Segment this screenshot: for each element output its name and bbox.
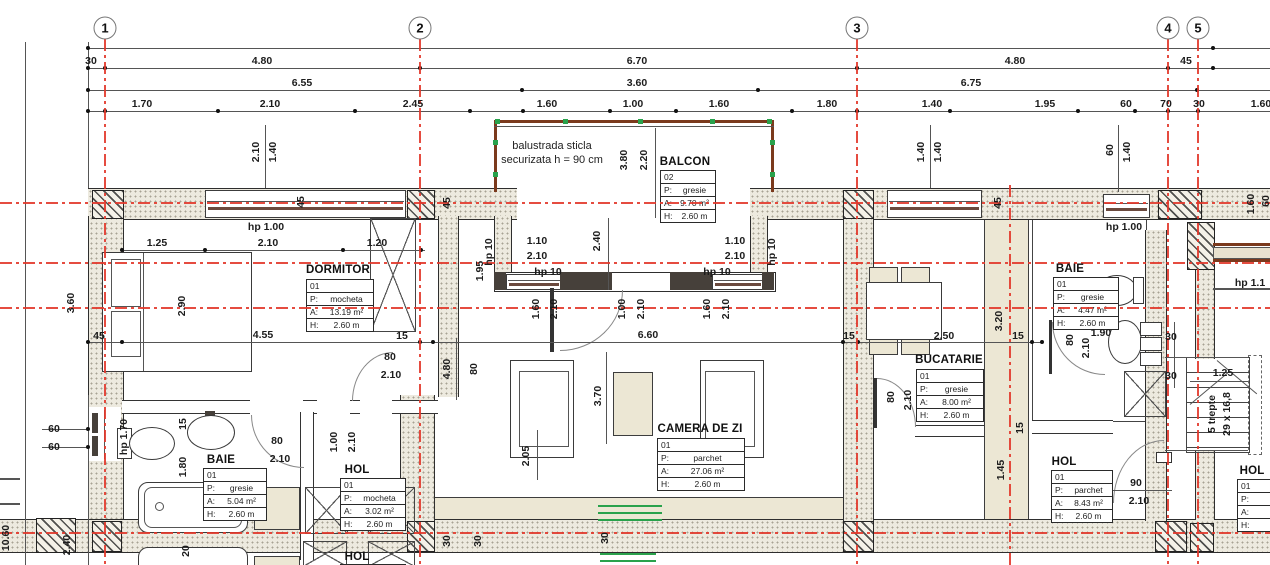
- room-table-row: A:8.43 m²: [1052, 496, 1112, 509]
- room-table-value: [674, 439, 741, 451]
- dim-label: 1.60: [537, 98, 557, 110]
- dim-label: 15: [1014, 422, 1026, 434]
- dim-label: 2.40: [591, 231, 603, 251]
- sink: [187, 415, 235, 450]
- terrace-railing-top: [1213, 243, 1270, 246]
- room-table-value: 2.60 m: [357, 518, 402, 530]
- dim-label: 1.00: [623, 98, 643, 110]
- room-table-value: 2.60 m: [674, 478, 741, 490]
- room-table-key: A:: [207, 495, 220, 507]
- dim-label: 2.50: [934, 330, 954, 342]
- room-table-key: H:: [207, 508, 220, 520]
- dim-label: 30: [441, 535, 453, 547]
- dim-label: 60: [1120, 98, 1132, 110]
- column-axis1-bottom: [92, 521, 122, 552]
- room-name: BAIE: [207, 454, 235, 466]
- room-table-row: P:gresie: [917, 382, 983, 395]
- room-table-value: gresie: [677, 184, 712, 196]
- dim-label: 6.55: [292, 77, 312, 89]
- dim-label: 30: [599, 532, 611, 544]
- dim-label: 80: [384, 351, 396, 363]
- room-name: HOL: [345, 464, 370, 476]
- dim-label: 15: [843, 330, 855, 342]
- dim-label: hp 1.1: [1235, 277, 1265, 289]
- stairs-bottom-line: [1165, 450, 1248, 451]
- room-table-value: [1254, 480, 1270, 492]
- room-table-value: [1068, 471, 1109, 483]
- dim-line: [1118, 125, 1119, 192]
- room-table-row: A:27.06 m²: [658, 464, 744, 477]
- balcony-wall-pier: [494, 272, 506, 290]
- dim-label: 60: [1104, 144, 1116, 156]
- room-table-row: H:2.60 m: [204, 507, 266, 520]
- room-table-row: H:2.60 m: [1052, 509, 1112, 522]
- dim-label: 1.10: [725, 235, 745, 247]
- room-table-value: [1254, 493, 1270, 505]
- dim-label: 3.70: [592, 386, 604, 406]
- door-leaf-kitchen: [874, 378, 877, 428]
- dim-row-line: [88, 68, 1270, 69]
- room-table-value: 2.60 m: [1068, 510, 1109, 522]
- room-table-value: [1070, 278, 1115, 290]
- dim-label: 1.70: [132, 98, 152, 110]
- room-info-table: 01P:gresieA:4.47 m²H:2.60 m: [1053, 277, 1119, 330]
- dim-label: 2.10: [1080, 338, 1092, 358]
- room-table-value: gresie: [933, 383, 980, 395]
- dim-label: 3.60: [65, 293, 77, 313]
- room-table-row: P:parchet: [1052, 483, 1112, 496]
- dim-label: 80: [271, 435, 283, 447]
- dim-tick: [353, 109, 357, 113]
- partition-dormitor-south-d: [392, 400, 438, 414]
- dim-tick: [790, 109, 794, 113]
- dim-label: 30: [472, 535, 484, 547]
- dim-tick: [1030, 340, 1034, 344]
- room-table-row: 01: [1052, 471, 1112, 483]
- room-name: BAIE: [1056, 263, 1084, 275]
- window-kitchen: [887, 190, 982, 218]
- window-left-wall-sash-icon: [92, 413, 98, 433]
- annotation-note: balustrada sticla: [512, 140, 592, 152]
- dim-line: [606, 352, 607, 444]
- dim-label: 45: [295, 196, 307, 208]
- dim-line: [265, 125, 266, 188]
- radiator-icon: [598, 505, 662, 521]
- room-table-value: 2.: [1254, 519, 1270, 531]
- annotation-note: securizata h = 90 cm: [501, 154, 603, 166]
- balustrade-left: [494, 120, 497, 192]
- room-table-key: A:: [1055, 497, 1068, 509]
- room-info-table: 01P:gresieA:5.04 m²H:2.60 m: [203, 468, 267, 521]
- balustrade-fixing-icon: [770, 172, 775, 177]
- dim-tick: [203, 248, 207, 252]
- dim-label: 2.10: [902, 390, 914, 410]
- room-table-value: parchet: [1068, 484, 1109, 496]
- room-table-row: H:2.60 m: [307, 318, 373, 331]
- stairs-side-wall: [1248, 355, 1262, 455]
- balustrade-fixing-icon: [770, 140, 775, 145]
- armchair-left: [510, 360, 574, 458]
- dim-label: 45: [992, 197, 1004, 209]
- room-table-key: P:: [920, 383, 933, 395]
- dim-label: 45: [1180, 55, 1192, 67]
- pillow: [111, 311, 141, 357]
- dim-label: 15: [1012, 330, 1024, 342]
- room-info-table: 01P:mochetaA:3.02 m²H:2.60 m: [340, 478, 406, 531]
- dim-label: 90: [1130, 477, 1142, 489]
- dim-line: [930, 125, 931, 188]
- partition-kitchen-south: [915, 425, 984, 437]
- dim-label: 80: [885, 391, 897, 403]
- dining-table: [866, 282, 942, 340]
- dim-label: 2.10: [725, 250, 745, 262]
- dim-label: 1.60: [709, 98, 729, 110]
- balustrade-fixing-icon: [495, 119, 500, 124]
- dim-tick: [120, 248, 124, 252]
- dim-label: hp 1.00: [248, 221, 284, 233]
- room-table-key: 01: [1057, 278, 1070, 290]
- dim-tick: [608, 109, 612, 113]
- room-table-row: A:3.02 m²: [341, 504, 405, 517]
- balustrade-top: [494, 120, 774, 123]
- room-table-key: H:: [344, 518, 357, 530]
- column-axis3-bottom: [843, 521, 874, 552]
- dim-label: 30: [1165, 370, 1177, 382]
- room-table-value: parchet: [674, 452, 741, 464]
- room-table-key: A:: [1057, 304, 1070, 316]
- room-table-value: [933, 370, 980, 382]
- room-table-row: H:2.60 m: [661, 209, 715, 222]
- dim-label: 2.10: [260, 98, 280, 110]
- balustrade-fixing-icon: [767, 119, 772, 124]
- room-table-value: 8.00 m²: [933, 396, 980, 408]
- dim-label: hp 1.70: [118, 419, 130, 455]
- room-table-key: 01: [1055, 471, 1068, 483]
- grid-bubble: 2: [409, 17, 432, 40]
- balustrade-inner-line: [494, 126, 774, 127]
- room-table-key: 01: [1241, 480, 1254, 492]
- dim-line: [1190, 381, 1248, 382]
- room-table-value: [220, 469, 263, 481]
- room-table-row: A:8.00 m²: [917, 395, 983, 408]
- room-table-key: H:: [1055, 510, 1068, 522]
- room-table-row: 01: [204, 469, 266, 481]
- room-table-key: H:: [664, 210, 677, 222]
- axis-line-vertical: [419, 39, 421, 565]
- column-axis45-top: [1158, 190, 1202, 219]
- dim-label: 1.40: [1121, 142, 1133, 162]
- dim-label: 2.10: [270, 453, 290, 465]
- shelf: [1140, 352, 1162, 366]
- dim-tick: [86, 427, 90, 431]
- room-table-value: 4.47 m²: [1070, 304, 1115, 316]
- room-info-table: 02P:gresieA:9.70 m²H:2.60 m: [660, 170, 716, 223]
- dim-label: 1.10: [527, 235, 547, 247]
- room-table-row: P:: [1238, 492, 1270, 505]
- room-table-row: A:4.47 m²: [1054, 303, 1118, 316]
- terrace-railing-band: [1213, 247, 1270, 259]
- room-table-row: 01: [1054, 278, 1118, 290]
- room-name: BUCATARIE: [915, 354, 983, 366]
- dim-label: 1.90: [1091, 327, 1111, 339]
- stairs-top-line: [1165, 357, 1248, 358]
- room-table-row: A:5.04 m²: [204, 494, 266, 507]
- room-table-value: gresie: [1070, 291, 1115, 303]
- room-table-value: 8.43 m²: [1068, 497, 1109, 509]
- room-table-row: 01: [307, 280, 373, 292]
- grid-bubble: 1: [94, 17, 117, 40]
- room-table-key: 01: [207, 469, 220, 481]
- bathtub-lower: [138, 547, 248, 565]
- dim-label: 29 x 16,8: [1221, 392, 1233, 436]
- room-table-row: 01: [917, 370, 983, 382]
- dim-line: [25, 42, 26, 565]
- armchair-cushion: [705, 371, 755, 447]
- dim-row-line: [88, 48, 1270, 49]
- room-table-value: 27.06 m²: [674, 465, 741, 477]
- dim-label: 4.80: [1005, 55, 1025, 67]
- dim-line: [537, 430, 538, 480]
- dim-label: hp 10: [534, 266, 561, 278]
- column-axis2-top: [407, 190, 435, 219]
- pillow: [111, 259, 141, 307]
- room-table-key: P:: [661, 452, 674, 464]
- room-table-key: P:: [207, 482, 220, 494]
- dim-label: 60: [48, 423, 60, 435]
- room-table-value: gresie: [220, 482, 263, 494]
- room-info-table: 01P:gresieA:8.00 m²H:2.60 m: [916, 369, 984, 422]
- neighbor-wall-line: [0, 478, 20, 480]
- room-table-value: 2.60 m: [933, 409, 980, 421]
- dim-line: [655, 128, 656, 218]
- balustrade-fixing-icon: [710, 119, 715, 124]
- room-table-key: 01: [310, 280, 323, 292]
- column-axis3-top: [843, 190, 874, 219]
- grid-bubble: 5: [1187, 17, 1210, 40]
- room-table-key: A:: [920, 396, 933, 408]
- dim-row-line: [88, 90, 1270, 91]
- shelf: [1140, 337, 1162, 351]
- dim-label: 1.60: [701, 299, 713, 319]
- room-table-key: H:: [1241, 519, 1254, 531]
- shower-tray-lower: [254, 556, 300, 565]
- room-table-row: P:parchet: [658, 451, 744, 464]
- column-axis4-bottom: [1155, 521, 1187, 552]
- dim-label: hp 10: [703, 266, 730, 278]
- room-table-key: P:: [664, 184, 677, 196]
- dim-tick: [86, 88, 90, 92]
- dim-label: 60: [48, 441, 60, 453]
- dim-label: 30: [1165, 331, 1177, 343]
- dim-label: 5 trepte: [1206, 395, 1218, 433]
- dim-label: 1.60: [530, 299, 542, 319]
- dim-tick: [431, 340, 435, 344]
- window-bathroom-right: [1103, 194, 1150, 218]
- dim-label: 2.10: [527, 250, 547, 262]
- dim-label: 6.70: [627, 55, 647, 67]
- room-name: CAMERA DE ZI: [657, 423, 742, 435]
- dim-label: 3.20: [993, 311, 1005, 331]
- coffee-table: [613, 372, 653, 436]
- dim-label: 1.00: [616, 299, 628, 319]
- dim-label: 45: [441, 197, 453, 209]
- room-table-row: 01: [341, 479, 405, 491]
- dim-tick: [86, 340, 90, 344]
- dim-label: 2.10: [1129, 495, 1149, 507]
- dim-label: 2.90: [176, 296, 188, 316]
- room-table-key: 01: [344, 479, 357, 491]
- room-info-table: 01P:parchetA:27.06 m²H:2.60 m: [657, 438, 745, 491]
- dim-label: 2.10: [258, 237, 278, 249]
- room-name: BALCON: [660, 156, 710, 168]
- room-table-value: [357, 479, 402, 491]
- dim-label: 3.60: [627, 77, 647, 89]
- partition-baie-hol-right: [1032, 420, 1113, 434]
- dim-tick: [1211, 66, 1215, 70]
- room-table-key: 01: [661, 439, 674, 451]
- axis-line-vertical: [1197, 39, 1199, 565]
- room-table-key: P:: [310, 293, 323, 305]
- room-info-table: 01P:A:18.H:2.: [1237, 479, 1270, 532]
- dim-tick: [756, 88, 760, 92]
- dim-label: 1.95: [1035, 98, 1055, 110]
- dim-line: [456, 338, 457, 400]
- room-table-value: 3.02 m²: [357, 505, 402, 517]
- balcony-wall-pier: [762, 272, 774, 290]
- dim-label: 4.80: [252, 55, 272, 67]
- room-name: HOL: [1240, 465, 1265, 477]
- dim-label: 6.60: [638, 329, 658, 341]
- axis-line-vertical: [1167, 39, 1169, 565]
- dim-tick: [1133, 109, 1137, 113]
- toilet: [129, 427, 175, 460]
- hall-floor-panel-lower: [368, 541, 415, 565]
- window-left-wall-sash-icon: [92, 436, 98, 456]
- axis-line-horizontal: [0, 202, 1270, 204]
- dim-label: 1.40: [915, 142, 927, 162]
- dim-line: [88, 342, 1042, 343]
- dim-label: 15: [177, 418, 189, 430]
- dim-label: 1.60: [1245, 194, 1257, 214]
- dim-label: hp 10: [483, 238, 495, 265]
- dim-label: 2.45: [403, 98, 423, 110]
- room-table-row: P:gresie: [204, 481, 266, 494]
- dim-label: 80: [1064, 334, 1076, 346]
- room-table-key: A:: [661, 465, 674, 477]
- door-leaf-hol-right: [1156, 452, 1172, 463]
- armchair-cushion: [519, 371, 569, 447]
- axis-line-vertical: [856, 39, 858, 565]
- dim-label: hp 1.00: [1106, 221, 1142, 233]
- dim-line: [608, 218, 609, 290]
- dim-label: 2.10: [381, 369, 401, 381]
- dim-label: 2.10: [548, 299, 560, 319]
- balustrade-fixing-icon: [563, 119, 568, 124]
- dim-label: 1.80: [177, 457, 189, 477]
- room-info-table: 01P:mochetaA:13.19 m²H:2.60 m: [306, 279, 374, 332]
- room-table-key: H:: [1057, 317, 1070, 329]
- dim-label: 1.40: [267, 142, 279, 162]
- dim-tick: [520, 88, 524, 92]
- bathtub-drain-icon: [155, 502, 164, 511]
- room-table-value: mocheta: [323, 293, 370, 305]
- axis-line-vertical: [104, 39, 106, 565]
- floor-plan: 12345304.806.704.80456.553.606.751.702.1…: [0, 0, 1270, 565]
- dim-label: 1.25: [1213, 367, 1233, 379]
- dim-tick: [521, 109, 525, 113]
- room-table-row: P:gresie: [661, 183, 715, 196]
- dim-label: 10.60: [0, 525, 12, 551]
- room-table-value: mocheta: [357, 492, 402, 504]
- dim-tick: [468, 109, 472, 113]
- room-table-row: 01: [658, 439, 744, 451]
- dim-label: 45: [93, 330, 105, 342]
- dim-label: 4.80: [441, 359, 453, 379]
- dim-label: 1.80: [817, 98, 837, 110]
- room-table-value: 5.04 m²: [220, 495, 263, 507]
- partition-dormitor-south-a: [122, 400, 250, 414]
- column-axis1-top: [92, 190, 124, 219]
- room-table-row: H:2.60 m: [341, 517, 405, 530]
- dim-tick: [341, 248, 345, 252]
- room-table-row: 02: [661, 171, 715, 183]
- balustrade-fixing-icon: [638, 119, 643, 124]
- shelf: [1140, 322, 1162, 336]
- grid-bubble: 3: [846, 17, 869, 40]
- dim-tick: [674, 109, 678, 113]
- room-table-row: H:2.: [1238, 518, 1270, 531]
- room-table-row: P:mocheta: [307, 292, 373, 305]
- dim-tick: [1211, 46, 1215, 50]
- dim-label: 1.45: [995, 460, 1007, 480]
- dim-tick: [86, 109, 90, 113]
- dim-label: 20: [180, 545, 192, 557]
- radiator-icon: [600, 553, 656, 565]
- dim-label: 1.60: [1251, 98, 1270, 110]
- dim-label: 15: [396, 330, 408, 342]
- neighbor-wall-line: [0, 503, 20, 505]
- room-table-key: H:: [661, 478, 674, 490]
- room-table-key: A:: [1241, 506, 1254, 518]
- room-name: HOL: [1052, 456, 1077, 468]
- column-axis5-bottom: [1190, 523, 1214, 552]
- dim-label: 2.10: [720, 299, 732, 319]
- room-table-row: 01: [1238, 480, 1270, 492]
- dim-label: 2.10: [635, 299, 647, 319]
- dim-label: 2.10: [250, 142, 262, 162]
- bed-fold-line: [143, 253, 144, 371]
- dim-label: 70: [1160, 98, 1172, 110]
- dim-label: 1.25: [147, 237, 167, 249]
- balustrade-fixing-icon: [493, 172, 498, 177]
- room-table-key: P:: [344, 492, 357, 504]
- dim-label: hp 10: [766, 238, 778, 265]
- door-leaf-baie-right: [1049, 320, 1052, 374]
- room-name: HOL: [345, 551, 370, 563]
- dim-label: 6.75: [961, 77, 981, 89]
- washing-machine: [1124, 371, 1166, 417]
- room-table-key: A:: [344, 505, 357, 517]
- dim-label: 1.00: [328, 432, 340, 452]
- dim-label: 2.20: [638, 150, 650, 170]
- room-table-key: H:: [920, 409, 933, 421]
- dim-label: 3.80: [618, 150, 630, 170]
- axis-line-vertical: [1009, 185, 1011, 565]
- grid-bubble: 4: [1157, 17, 1180, 40]
- dim-line: [88, 395, 89, 565]
- room-table-key: P:: [1055, 484, 1068, 496]
- dim-tick: [216, 109, 220, 113]
